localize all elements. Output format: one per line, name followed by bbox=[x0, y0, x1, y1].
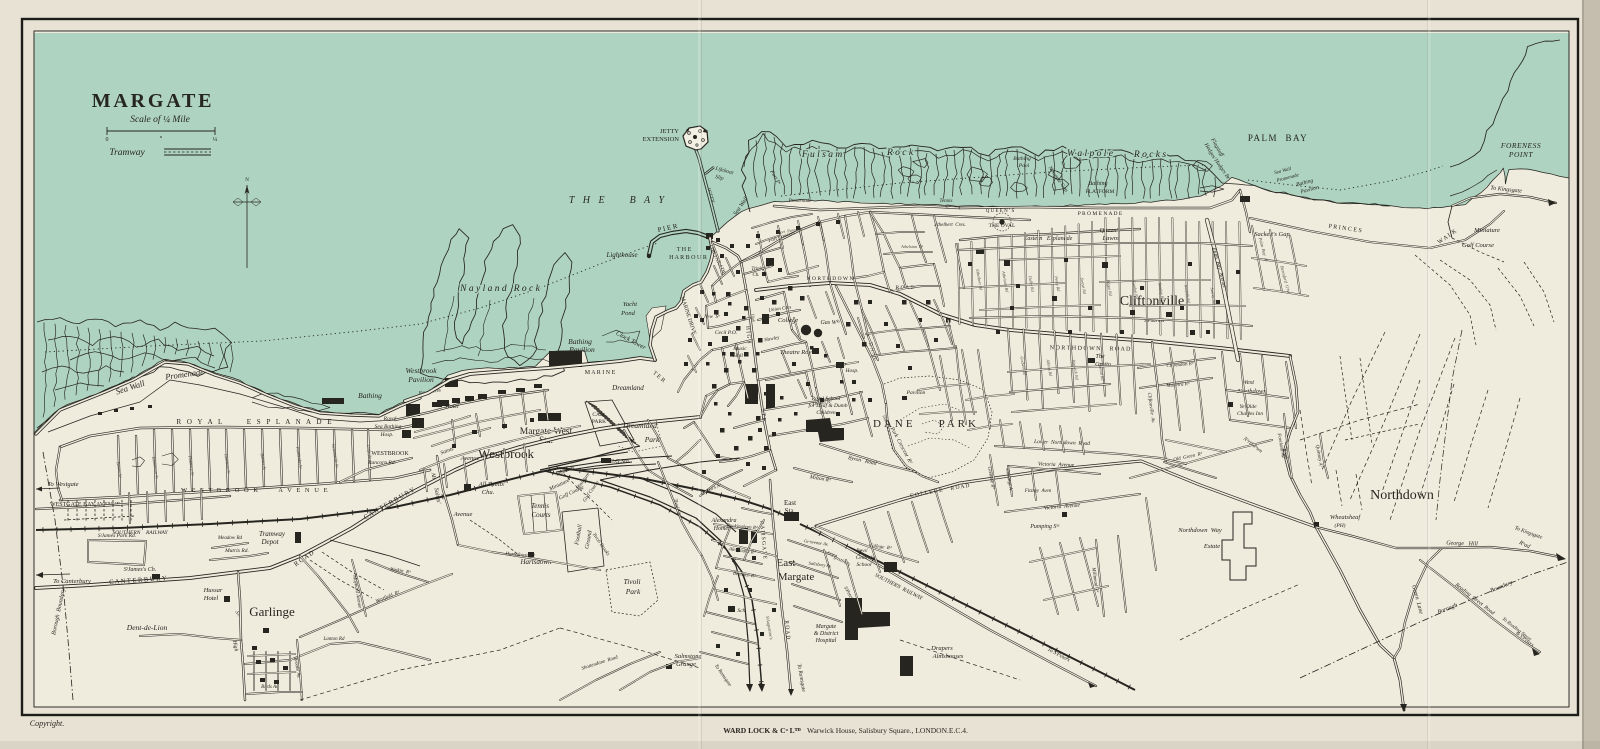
svg-text:JETTY: JETTY bbox=[660, 128, 679, 135]
svg-text:& District: & District bbox=[814, 631, 839, 637]
svg-text:R O Y A L E S P L A N A D: R O Y A L E S P L A N A D E bbox=[176, 418, 333, 426]
svg-text:Hussar: Hussar bbox=[203, 587, 223, 594]
svg-text:Charles Inn: Charles Inn bbox=[1237, 411, 1263, 417]
svg-text:N O R T H D O W N: N O R T H D O W N bbox=[807, 276, 854, 282]
svg-text:Northdown Way: Northdown Way bbox=[1177, 527, 1222, 534]
svg-text:Central: Central bbox=[856, 555, 873, 561]
svg-text:Lawns: Lawns bbox=[1102, 235, 1120, 242]
svg-text:Mutrix Rd.: Mutrix Rd. bbox=[224, 548, 249, 554]
svg-text:Tramway: Tramway bbox=[259, 530, 286, 538]
svg-text:EXTENSION: EXTENSION bbox=[643, 136, 680, 143]
svg-text:Q U E E N ’ S: Q U E E N ’ S bbox=[986, 209, 1015, 214]
svg-text:Hotel: Hotel bbox=[203, 595, 219, 602]
svg-text:0: 0 bbox=[106, 137, 109, 143]
svg-text:Boys': Boys' bbox=[856, 548, 869, 554]
svg-text:Pool: Pool bbox=[1018, 163, 1030, 169]
svg-text:Cecil P.O.: Cecil P.O. bbox=[715, 330, 737, 336]
svg-text:Lanton Rd: Lanton Rd bbox=[323, 637, 345, 642]
svg-text:Ch.: Ch. bbox=[752, 273, 759, 278]
svg-text:Westbrook: Westbrook bbox=[405, 366, 437, 375]
svg-text:Estate: Estate bbox=[1203, 543, 1220, 550]
svg-text:Ye Olde: Ye Olde bbox=[1239, 404, 1257, 410]
svg-text:Hotel: Hotel bbox=[444, 404, 459, 410]
svg-text:Margate: Margate bbox=[815, 624, 837, 630]
svg-text:Warwick House, Salisbury Squar: Warwick House, Salisbury Square., LONDON… bbox=[807, 726, 968, 735]
svg-text:High: High bbox=[750, 312, 756, 322]
svg-text:PLATFORM: PLATFORM bbox=[1086, 189, 1115, 195]
svg-text:Tramway: Tramway bbox=[109, 148, 145, 158]
svg-text:F u l s a m: F u l s a m bbox=[801, 150, 843, 160]
svg-text:POINT: POINT bbox=[1508, 150, 1533, 159]
svg-text:Royᵃl School: Royᵃl School bbox=[811, 396, 841, 402]
svg-text:Sta.: Sta. bbox=[785, 507, 796, 515]
svg-text:The: The bbox=[1096, 354, 1105, 360]
svg-text:To Canterbury: To Canterbury bbox=[53, 578, 91, 585]
svg-text:Queen's: Queen's bbox=[1100, 227, 1121, 234]
svg-text:Ethelbert Cres.: Ethelbert Cres. bbox=[933, 223, 966, 228]
svg-text:WESTBROOK: WESTBROOK bbox=[371, 451, 409, 457]
svg-text:George Hill: George Hill bbox=[1446, 540, 1478, 547]
svg-text:Pond: Pond bbox=[620, 310, 635, 317]
svg-text:N a y l a n d R o c k: N a y l a n d R o c k bbox=[459, 284, 540, 294]
svg-text:T H E: T H E bbox=[677, 247, 692, 253]
svg-text:Promenade: Promenade bbox=[788, 199, 813, 204]
svg-text:New Sᵗʳ: New Sᵗʳ bbox=[703, 314, 721, 320]
svg-text:W E S T B R O O K A V E N: W E S T B R O O K A V E N U E bbox=[181, 487, 329, 494]
svg-text:Theatre Royˡ: Theatre Royˡ bbox=[780, 349, 814, 356]
svg-text:SᵗJames's Ch.: SᵗJames's Ch. bbox=[124, 567, 157, 573]
svg-text:Northdown: Northdown bbox=[1370, 488, 1434, 503]
svg-text:PARK: PARK bbox=[592, 419, 606, 425]
svg-text:M A R I N E: M A R I N E bbox=[585, 370, 616, 376]
svg-text:Copyright.: Copyright. bbox=[30, 719, 64, 728]
svg-text:Tennis: Tennis bbox=[940, 199, 953, 204]
svg-text:WARD LOCK & Cᵒ Lᵀᴰ: WARD LOCK & Cᵒ Lᵀᴰ bbox=[723, 726, 801, 735]
svg-text:for Deaf & Dumb: for Deaf & Dumb bbox=[809, 402, 848, 409]
svg-text:Courts: Courts bbox=[531, 511, 550, 519]
svg-text:Bathing: Bathing bbox=[1013, 156, 1031, 162]
svg-text:Chu.: Chu. bbox=[482, 489, 495, 496]
svg-text:Pavilion: Pavilion bbox=[906, 390, 926, 396]
svg-text:School: School bbox=[857, 562, 872, 568]
svg-text:Music: Music bbox=[732, 346, 747, 352]
svg-text:Victoria Avenue: Victoria Avenue bbox=[1038, 461, 1075, 468]
svg-text:SOUTHERN RAILWAY: SOUTHERN RAILWAY bbox=[112, 530, 168, 536]
svg-text:(PH): (PH) bbox=[1335, 522, 1346, 529]
svg-text:Birds Av.: Birds Av. bbox=[261, 685, 279, 690]
svg-text:Avenue: Avenue bbox=[453, 511, 473, 518]
svg-text:Pavilion: Pavilion bbox=[407, 375, 434, 384]
svg-text:Bathing: Bathing bbox=[358, 391, 382, 400]
svg-text:Lighthouse: Lighthouse bbox=[605, 251, 637, 259]
svg-text:W a l p o l e: W a l p o l e bbox=[1067, 149, 1113, 159]
svg-text:Children: Children bbox=[816, 410, 836, 416]
svg-text:R o c k: R o c k bbox=[886, 148, 914, 158]
svg-text:FORENESS: FORENESS bbox=[1500, 141, 1541, 150]
svg-text:T H E B A Y: T H E B A Y bbox=[569, 195, 667, 206]
svg-text:R o c k s: R o c k s bbox=[1133, 150, 1166, 160]
svg-text:Meadow Rd: Meadow Rd bbox=[217, 536, 243, 541]
svg-text:Wheatsheaf: Wheatsheaf bbox=[1330, 514, 1362, 521]
svg-text:P R O M E N A D E: P R O M E N A D E bbox=[1078, 211, 1123, 217]
svg-text:Scale of ¼ Mile: Scale of ¼ Mile bbox=[130, 114, 190, 125]
svg-text:Almshouses: Almshouses bbox=[932, 653, 964, 660]
svg-text:Depot: Depot bbox=[260, 538, 279, 546]
svg-text:Miniature: Miniature bbox=[1473, 227, 1500, 234]
svg-text:Margate: Margate bbox=[778, 571, 815, 583]
svg-text:Hospital: Hospital bbox=[815, 638, 837, 644]
svg-text:Tivoli: Tivoli bbox=[623, 577, 640, 586]
svg-text:Gas Wᵏˢ: Gas Wᵏˢ bbox=[820, 320, 840, 326]
svg-text:Pumping Sᵗᵃ: Pumping Sᵗᵃ bbox=[1029, 524, 1060, 530]
svg-text:Rancorn Rd.: Rancorn Rd. bbox=[367, 460, 396, 466]
svg-text:Dent-de-Lion: Dent-de-Lion bbox=[126, 623, 168, 632]
svg-text:Fitzroy Aven: Fitzroy Aven bbox=[1024, 489, 1052, 494]
svg-text:East: East bbox=[784, 499, 796, 507]
svg-text:N: N bbox=[245, 178, 249, 183]
svg-text:PALM BAY: PALM BAY bbox=[1248, 133, 1308, 143]
svg-text:Avenue: Avenue bbox=[460, 455, 480, 462]
svg-text:Garlinge: Garlinge bbox=[249, 604, 295, 619]
svg-text:Hosp.: Hosp. bbox=[845, 368, 859, 374]
svg-text:Yacht: Yacht bbox=[623, 301, 637, 308]
svg-text:¼: ¼ bbox=[213, 137, 218, 143]
svg-text:Tennis: Tennis bbox=[531, 502, 549, 510]
svg-text:Cliftonville: Cliftonville bbox=[1120, 294, 1185, 309]
svg-text:To Westgate: To Westgate bbox=[47, 481, 78, 488]
svg-text:MARGATE: MARGATE bbox=[92, 90, 215, 112]
svg-text:Sea Bathing: Sea Bathing bbox=[375, 424, 402, 430]
svg-text:Athelstan Rᵈ: Athelstan Rᵈ bbox=[900, 244, 923, 249]
svg-text:Park: Park bbox=[625, 587, 641, 596]
svg-text:Sch.: Sch. bbox=[737, 608, 746, 614]
svg-text:Hosp.: Hosp. bbox=[380, 432, 394, 438]
svg-text:Dreamland: Dreamland bbox=[611, 384, 644, 392]
svg-text:CAR: CAR bbox=[592, 412, 604, 418]
svg-text:Bathing: Bathing bbox=[1089, 181, 1108, 187]
